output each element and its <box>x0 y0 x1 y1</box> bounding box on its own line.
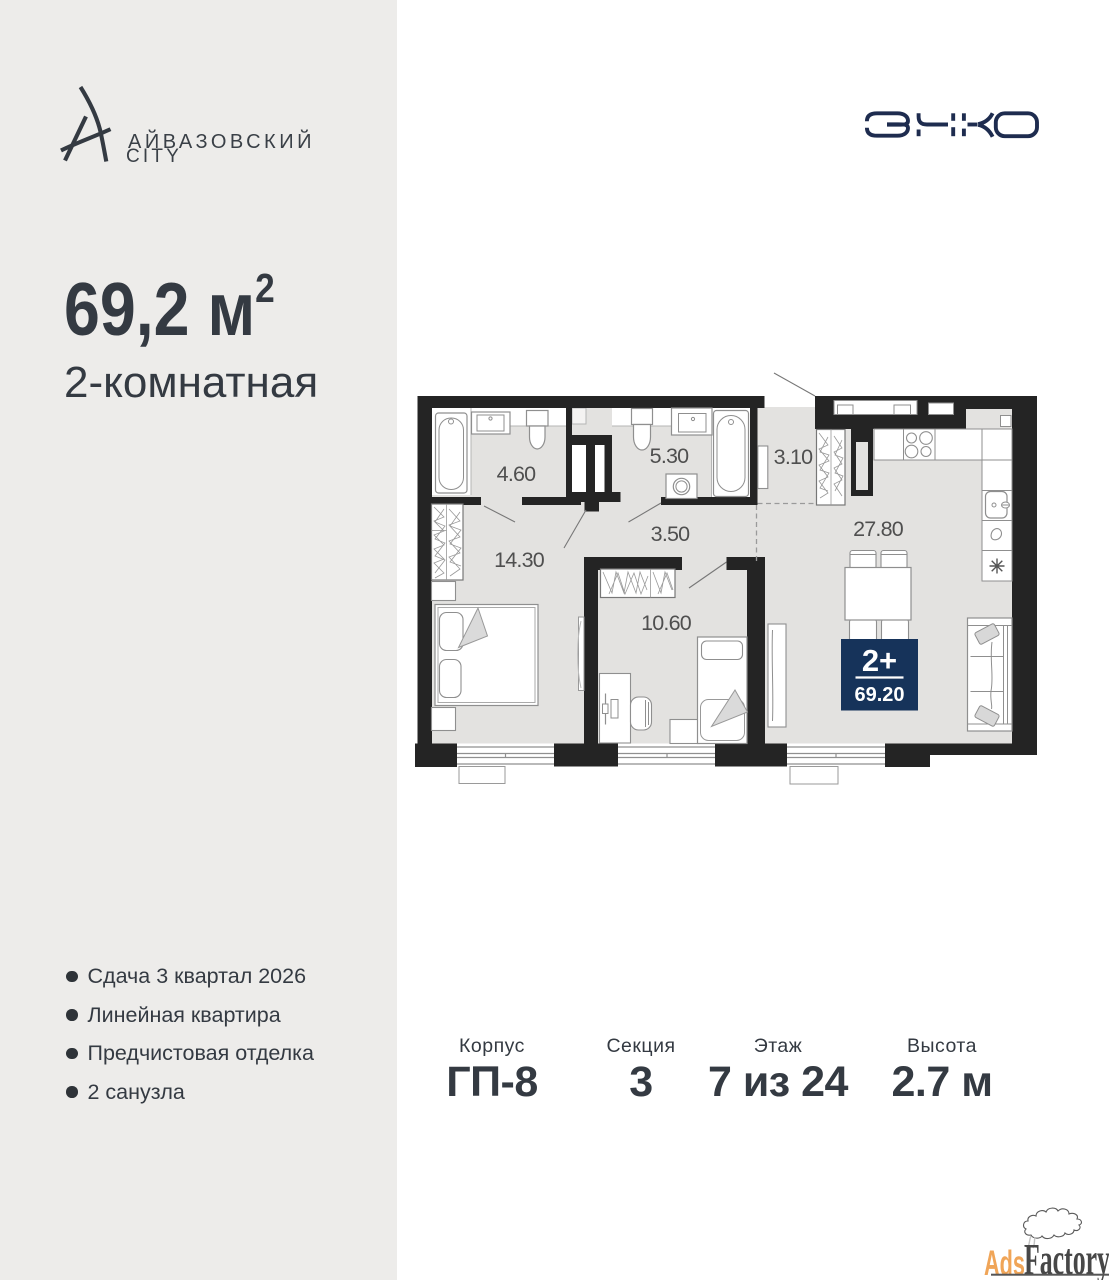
svg-text:27.80: 27.80 <box>853 517 904 541</box>
svg-text:4.60: 4.60 <box>497 462 536 486</box>
svg-text:69.20: 69.20 <box>854 684 904 706</box>
svg-text:Factory: Factory <box>1024 1235 1109 1280</box>
svg-text:3.10: 3.10 <box>774 445 813 469</box>
svg-text:3.50: 3.50 <box>651 522 690 546</box>
svg-text:10.60: 10.60 <box>641 611 692 635</box>
svg-text:5.30: 5.30 <box>650 444 689 468</box>
svg-text:2+: 2+ <box>862 643 897 678</box>
svg-text:14.30: 14.30 <box>494 548 545 572</box>
